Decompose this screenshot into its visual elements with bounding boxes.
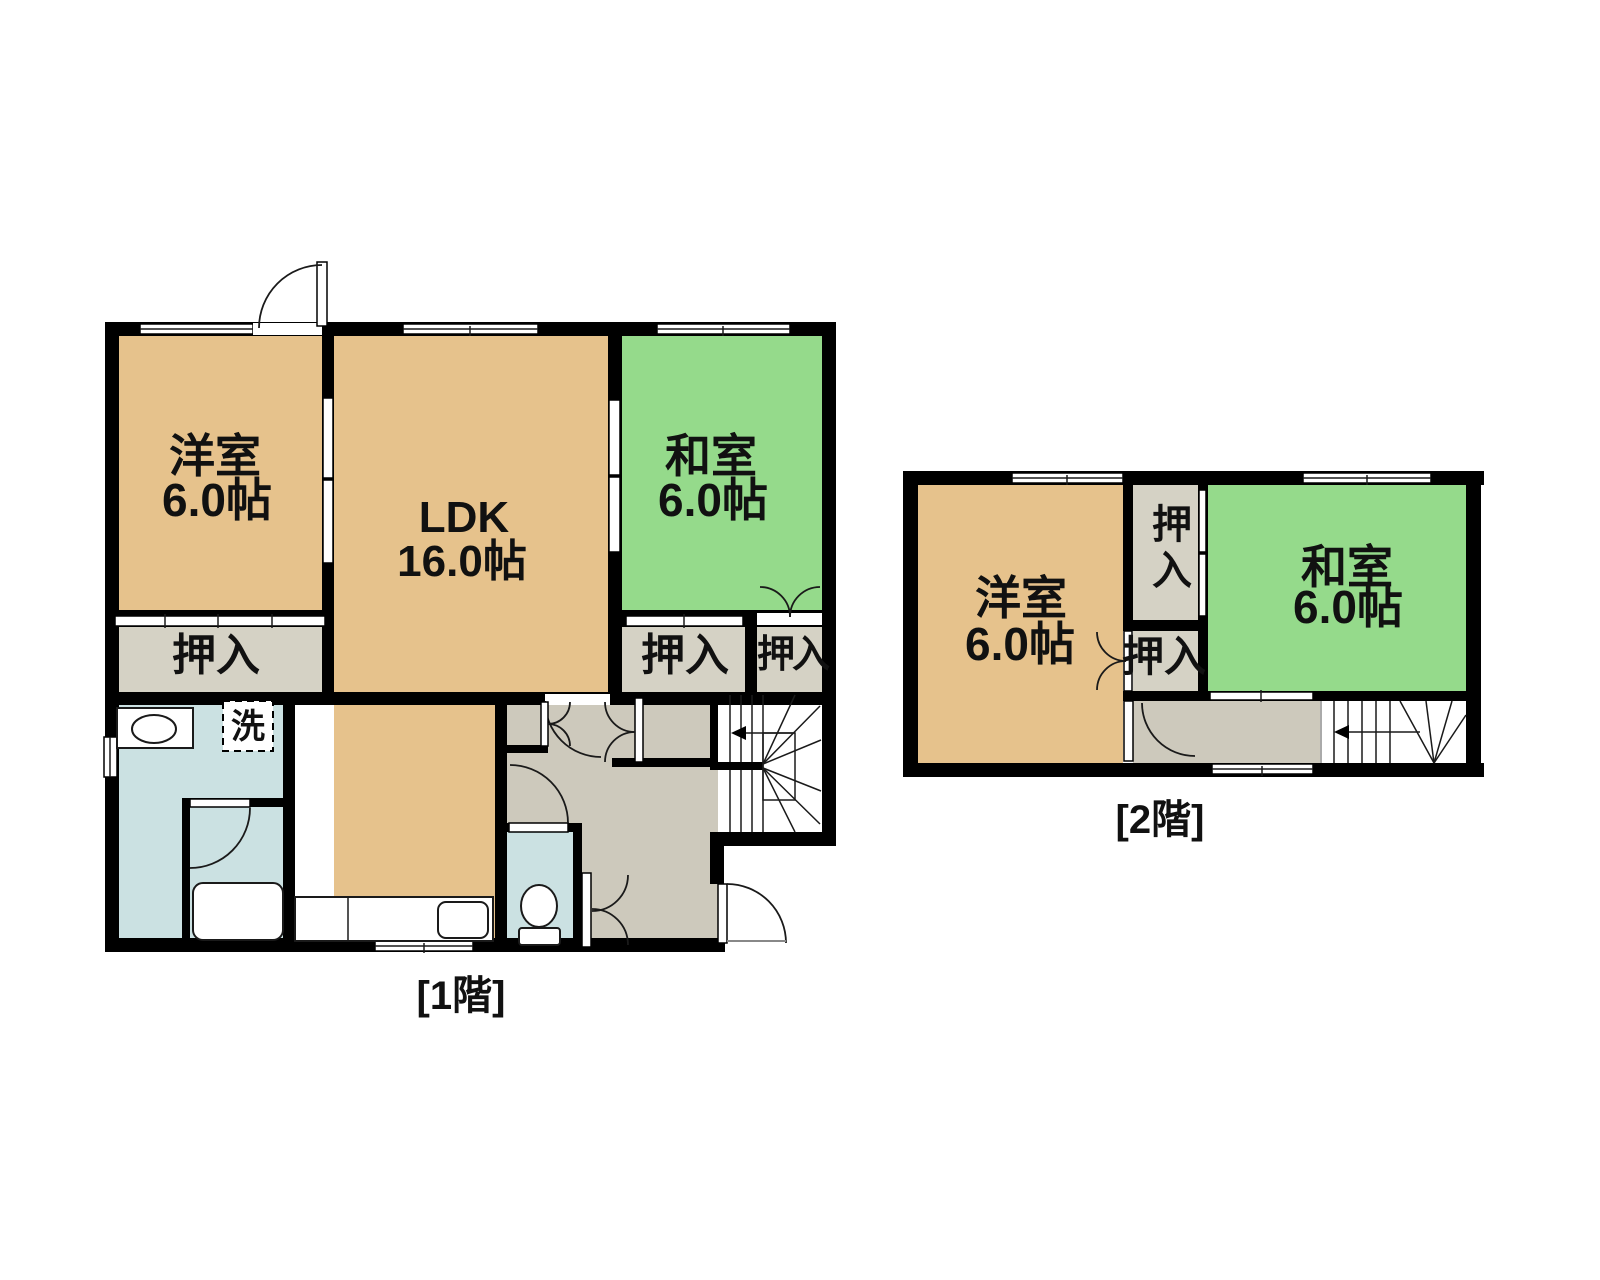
f1-closet-mid-label: 押入	[641, 634, 729, 678]
toilet-tank	[519, 928, 560, 945]
door-leaf	[190, 799, 250, 807]
sliding-door	[1199, 490, 1206, 552]
door-leaf	[541, 702, 548, 746]
door-leaf	[635, 698, 643, 762]
f1-laundry-label: 洗	[231, 710, 265, 744]
floorplan-page: 洋室 6.0帖 LDK 16.0帖 和室 6.0帖 押入 押入 押入 洗 [1階…	[0, 0, 1600, 1280]
f1-closet-right-label: 押入	[757, 636, 827, 674]
sliding-door	[323, 480, 333, 563]
floor1-plan	[104, 262, 836, 953]
sliding-door	[1199, 554, 1206, 616]
f2-japanese-room-size: 6.0帖	[1293, 584, 1403, 630]
f2-closet-upper-label: 押入	[1148, 503, 1188, 595]
f2-western-room-label: 洋室	[975, 575, 1067, 621]
stair-direction-arrow	[731, 726, 746, 740]
bathtub	[193, 883, 283, 940]
sliding-door	[609, 400, 620, 475]
f1-closet-left-label: 押入	[172, 634, 260, 678]
f1-western-room-label: 洋室	[169, 433, 261, 479]
f1-japanese-room-label: 和室	[665, 433, 757, 479]
f2-western-room-size: 6.0帖	[965, 621, 1075, 667]
closet-sliding-door	[115, 616, 325, 626]
door-leaf	[1124, 701, 1133, 761]
f1-western-room-size: 6.0帖	[162, 477, 272, 523]
f1-caption: [1階]	[417, 976, 506, 1016]
f1-ldk-label: LDK	[419, 496, 509, 540]
f1-japanese-room-size: 6.0帖	[658, 477, 768, 523]
sink-basin	[132, 715, 176, 743]
f2-hallway-area	[1133, 701, 1320, 763]
f2-closet-lower-label: 押入	[1122, 636, 1206, 678]
f2-caption: [2階]	[1116, 800, 1205, 840]
door-arc	[259, 265, 322, 328]
sliding-door	[323, 398, 333, 478]
toilet-bowl	[521, 885, 557, 927]
sliding-door	[609, 477, 620, 552]
entrance-door-arc	[727, 884, 786, 943]
door-leaf	[582, 873, 591, 947]
f1-ldk-size: 16.0帖	[397, 540, 527, 584]
door-leaf	[317, 262, 327, 326]
stair-direction-arrow	[1334, 725, 1349, 739]
f2-staircase	[1321, 701, 1466, 763]
door-leaf	[509, 823, 568, 832]
kitchen-sink	[438, 902, 488, 938]
entrance-door-leaf	[718, 884, 727, 943]
